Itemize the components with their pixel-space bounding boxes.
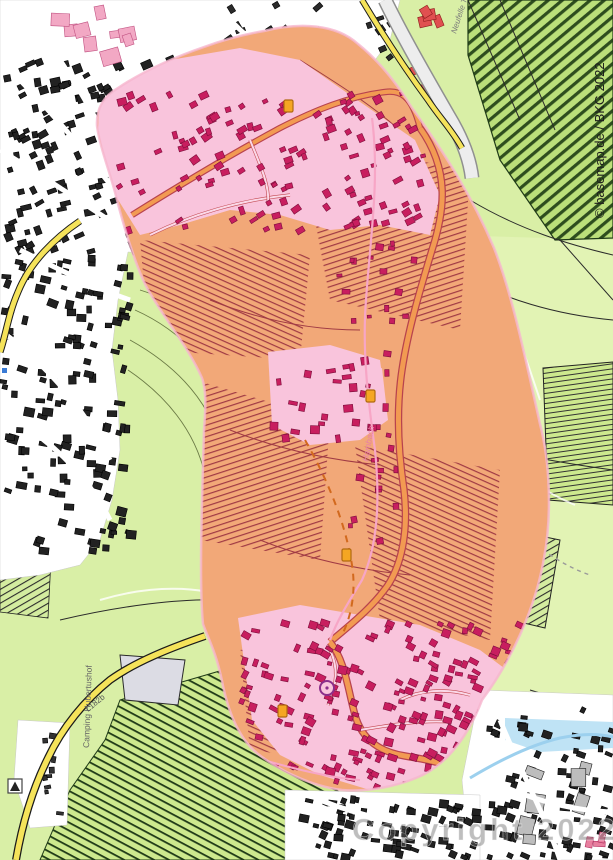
map-viewport[interactable]: Hambach Camping Hubertushof L182b Neufel… xyxy=(0,0,613,860)
campsite-icon xyxy=(8,779,22,793)
gray-lot xyxy=(120,655,185,705)
map-canvas: Hambach Camping Hubertushof L182b Neufel… xyxy=(0,0,613,860)
map-attribution: © basemap.de / BKG 2022 xyxy=(592,62,607,218)
info-point-icon xyxy=(2,368,7,373)
copyright-watermark: Copyright 2022 xyxy=(352,812,613,847)
